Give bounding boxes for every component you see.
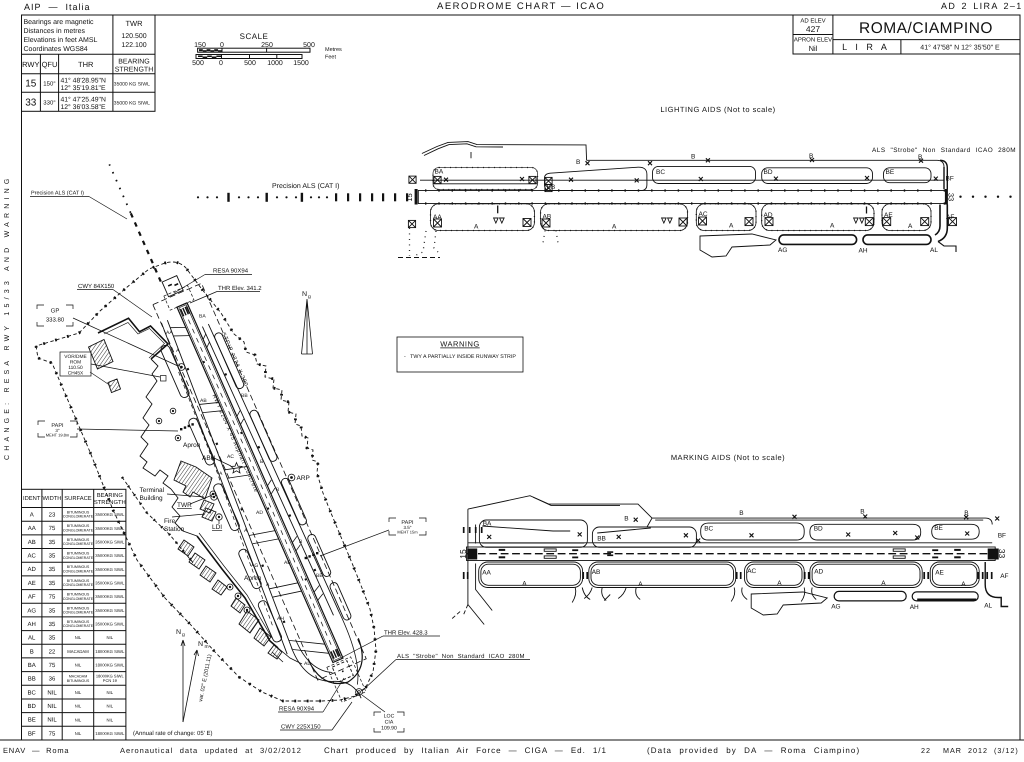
svg-text:AB: AB xyxy=(28,539,36,546)
svg-text:Coordinates WGS84: Coordinates WGS84 xyxy=(24,45,88,53)
svg-text:CONGLOMERATE: CONGLOMERATE xyxy=(63,611,94,615)
svg-text:LDI: LDI xyxy=(212,524,222,531)
svg-text:NIL: NIL xyxy=(75,690,82,695)
svg-text:BD: BD xyxy=(814,526,823,533)
svg-text:33: 33 xyxy=(997,549,1007,559)
svg-text:CWY 84X150: CWY 84X150 xyxy=(78,283,115,290)
svg-text:NIL: NIL xyxy=(107,717,114,722)
svg-text:AD: AD xyxy=(814,569,823,576)
svg-text:ALS "Strobe" Non Standard ICAO: ALS "Strobe" Non Standard ICAO 280M xyxy=(872,147,1016,154)
svg-text:Fire: Fire xyxy=(164,518,176,525)
svg-text:A: A xyxy=(474,224,479,231)
svg-text:(Annual rate of change: 05' E): (Annual rate of change: 05' E) xyxy=(133,730,213,737)
svg-text:B: B xyxy=(624,516,628,523)
svg-text:AE: AE xyxy=(28,580,36,587)
svg-text:A: A xyxy=(830,223,835,230)
svg-text:A: A xyxy=(638,581,643,588)
svg-text:122.100: 122.100 xyxy=(121,42,146,49)
svg-text:WIDTH: WIDTH xyxy=(43,496,62,502)
svg-text:35000KG SIWL: 35000KG SIWL xyxy=(95,567,125,572)
svg-text:N: N xyxy=(176,629,181,636)
svg-text:23: 23 xyxy=(49,512,56,519)
svg-text:ARP: ARP xyxy=(297,475,310,482)
svg-text:AH: AH xyxy=(910,604,919,611)
svg-text:AD: AD xyxy=(28,566,37,573)
svg-text:75: 75 xyxy=(49,525,56,532)
svg-text:330°: 330° xyxy=(43,100,56,107)
svg-text:AG: AG xyxy=(831,604,840,611)
svg-text:427: 427 xyxy=(806,24,820,34)
svg-text:AE: AE xyxy=(284,560,291,566)
svg-text:ABN: ABN xyxy=(202,455,216,462)
svg-text:A: A xyxy=(961,581,966,588)
svg-text:0: 0 xyxy=(219,60,223,67)
svg-text:TWR: TWR xyxy=(177,502,192,509)
svg-text:33: 33 xyxy=(25,98,37,109)
svg-text:Apron: Apron xyxy=(244,575,262,582)
svg-text:BE: BE xyxy=(934,525,943,532)
svg-text:BF: BF xyxy=(998,533,1006,540)
svg-text:ROM: ROM xyxy=(70,360,81,366)
svg-text:SCALE: SCALE xyxy=(240,32,269,41)
svg-text:BC: BC xyxy=(28,689,37,696)
svg-text:AH: AH xyxy=(28,621,36,628)
svg-text:A: A xyxy=(30,512,34,519)
svg-text:Elevations in feet AMSL: Elevations in feet AMSL xyxy=(24,36,98,44)
svg-text:109.90: 109.90 xyxy=(381,726,397,732)
svg-text:AF: AF xyxy=(1000,573,1008,580)
svg-text:NIL: NIL xyxy=(75,731,82,736)
svg-text:CONGLOMERATE: CONGLOMERATE xyxy=(63,583,94,587)
svg-text:BEARING: BEARING xyxy=(97,492,124,499)
svg-text:AG: AG xyxy=(778,247,787,254)
svg-text:CWY 225X150: CWY 225X150 xyxy=(281,724,321,731)
svg-text:WARNING: WARNING xyxy=(440,340,479,349)
svg-text:BB: BB xyxy=(28,676,36,683)
svg-text:Aeronautical data updated at 3: Aeronautical data updated at 3/02/2012 xyxy=(120,746,302,755)
svg-text:AE: AE xyxy=(935,570,944,577)
svg-text:THR Elev. 341.2: THR Elev. 341.2 xyxy=(218,285,262,292)
svg-text:Bearings are magnetic: Bearings are magnetic xyxy=(24,18,95,26)
svg-text:35: 35 xyxy=(49,566,56,573)
svg-text:AERODROME CHART — ICAO: AERODROME CHART — ICAO xyxy=(437,1,605,12)
svg-text:BB: BB xyxy=(597,536,606,543)
svg-text:BA: BA xyxy=(483,521,492,528)
svg-text:41° 47'25.49"N: 41° 47'25.49"N xyxy=(61,97,106,104)
svg-text:Distances in metres: Distances in metres xyxy=(24,27,86,35)
svg-text:VOR/DME: VOR/DME xyxy=(64,354,86,360)
svg-text:AC: AC xyxy=(227,454,234,460)
svg-text:12° 35'19.81"E: 12° 35'19.81"E xyxy=(61,85,106,92)
svg-text:NIL: NIL xyxy=(47,689,57,696)
svg-text:CONGLOMERATE: CONGLOMERATE xyxy=(63,569,94,573)
svg-text:35000 KG SIWL: 35000 KG SIWL xyxy=(114,101,150,107)
svg-text:MACADAM: MACADAM xyxy=(67,649,89,654)
svg-text:CONGLOMERATE: CONGLOMERATE xyxy=(63,515,94,519)
svg-text:TWR: TWR xyxy=(125,19,143,28)
svg-text:RESA 90X94: RESA 90X94 xyxy=(213,268,249,275)
svg-text:MEHT 15m: MEHT 15m xyxy=(397,530,418,535)
svg-text:GP: GP xyxy=(51,308,60,315)
svg-text:75: 75 xyxy=(49,662,56,669)
svg-text:Precision ALS (CAT I): Precision ALS (CAT I) xyxy=(272,182,339,190)
svg-text:STRENGTH: STRENGTH xyxy=(115,67,154,74)
svg-text:A: A xyxy=(777,580,782,587)
svg-text:SURFACE: SURFACE xyxy=(64,495,92,502)
svg-text:BA: BA xyxy=(435,169,444,176)
svg-text:BC: BC xyxy=(656,169,665,176)
svg-text:APRON ELEV: APRON ELEV xyxy=(794,37,832,44)
svg-text:(Data provided by DA — Roma Ci: (Data provided by DA — Roma Ciampino) xyxy=(647,746,860,755)
svg-text:NIL: NIL xyxy=(107,704,114,709)
svg-text:IDENT: IDENT xyxy=(23,496,41,502)
svg-text:var. 02° E (2011.11): var. 02° E (2011.11) xyxy=(198,654,213,703)
svg-text:35: 35 xyxy=(49,539,56,546)
svg-text:CONGLOMERATE: CONGLOMERATE xyxy=(63,556,94,560)
svg-text:CONGLOMERATE: CONGLOMERATE xyxy=(63,624,94,628)
svg-text:150°: 150° xyxy=(43,81,56,88)
svg-text:B: B xyxy=(739,510,743,517)
svg-text:CH45X: CH45X xyxy=(68,371,84,377)
svg-text:NIL: NIL xyxy=(75,704,82,709)
svg-text:AC: AC xyxy=(28,553,37,560)
svg-text:41° 47'58" N 12° 35'50" E: 41° 47'58" N 12° 35'50" E xyxy=(920,45,1000,52)
svg-text:18000KG SIWL: 18000KG SIWL xyxy=(95,649,125,654)
svg-text:BE: BE xyxy=(316,573,323,579)
svg-text:Station: Station xyxy=(164,526,185,533)
svg-text:120.500: 120.500 xyxy=(121,33,146,40)
svg-text:Nil: Nil xyxy=(809,44,818,53)
svg-text:35000KG SIWL: 35000KG SIWL xyxy=(95,553,125,558)
svg-text:AL: AL xyxy=(304,661,310,667)
svg-text:BE: BE xyxy=(28,717,36,724)
svg-text:22 MAR 2012 (3/12): 22 MAR 2012 (3/12) xyxy=(921,746,1019,755)
svg-text:STRENGTH: STRENGTH xyxy=(94,499,126,506)
svg-text:18000KG SIWL: 18000KG SIWL xyxy=(95,663,125,668)
svg-text:CONGLOMERATE: CONGLOMERATE xyxy=(63,528,94,532)
svg-text:A: A xyxy=(729,223,734,230)
svg-text:Chart produced by Italian Air: Chart produced by Italian Air Force — CI… xyxy=(324,746,607,755)
svg-text:110.50: 110.50 xyxy=(68,365,83,371)
svg-text:NIL: NIL xyxy=(75,663,82,668)
svg-text:g: g xyxy=(308,294,311,300)
svg-text:A: A xyxy=(522,581,527,588)
svg-text:NIL: NIL xyxy=(107,635,114,640)
svg-text:AG: AG xyxy=(27,607,36,614)
svg-text:35000KG SIWL: 35000KG SIWL xyxy=(95,594,125,599)
svg-text:35000KG SIWL: 35000KG SIWL xyxy=(95,622,125,627)
svg-text:AH: AH xyxy=(859,248,868,255)
svg-text:THR Elev. 428.3: THR Elev. 428.3 xyxy=(384,630,428,637)
svg-text:RESA 90X94: RESA 90X94 xyxy=(279,706,315,713)
svg-text:NIL: NIL xyxy=(47,703,57,710)
svg-text:CHANGE: RESA RWY 15/33 AND WAR: CHANGE: RESA RWY 15/33 AND WARNING xyxy=(3,174,11,460)
svg-text:12° 36'03.58"E: 12° 36'03.58"E xyxy=(61,104,106,111)
svg-text:BB: BB xyxy=(241,393,248,399)
svg-text:A: A xyxy=(266,582,270,588)
svg-text:CONGLOMERATE: CONGLOMERATE xyxy=(63,542,94,546)
svg-text:1000: 1000 xyxy=(267,60,283,67)
svg-text:15: 15 xyxy=(25,79,37,90)
svg-text:MEHT 19.8m: MEHT 19.8m xyxy=(46,433,70,438)
svg-text:BC: BC xyxy=(704,526,713,533)
svg-text:A: A xyxy=(908,223,913,230)
svg-text:B: B xyxy=(30,648,34,655)
svg-text:AH: AH xyxy=(277,616,284,622)
svg-text:PCN 19: PCN 19 xyxy=(103,678,118,683)
svg-text:500: 500 xyxy=(192,60,204,67)
svg-text:g: g xyxy=(182,632,185,638)
svg-text:35000KG SIWL: 35000KG SIWL xyxy=(95,512,125,517)
svg-text:22: 22 xyxy=(49,648,56,655)
svg-text:ROMA/CIAMPINO: ROMA/CIAMPINO xyxy=(859,20,993,37)
svg-text:B: B xyxy=(576,159,580,166)
svg-text:35: 35 xyxy=(49,580,56,587)
svg-text:35: 35 xyxy=(49,635,56,642)
svg-text:BF: BF xyxy=(28,730,36,737)
svg-text:AA: AA xyxy=(28,525,36,532)
svg-text:35: 35 xyxy=(49,621,56,628)
svg-text:AD 2 LIRA 2–1: AD 2 LIRA 2–1 xyxy=(941,1,1023,11)
svg-text:A: A xyxy=(881,580,886,587)
svg-text:35000KG SIWL: 35000KG SIWL xyxy=(95,581,125,586)
svg-text:Precision ALS (CAT I): Precision ALS (CAT I) xyxy=(31,191,84,197)
svg-text:Metres: Metres xyxy=(325,47,342,53)
svg-text:BEARING: BEARING xyxy=(118,59,150,66)
svg-text:LIGHTING AIDS (Not to scale): LIGHTING AIDS (Not to scale) xyxy=(660,105,775,114)
svg-text:B: B xyxy=(691,154,695,161)
svg-text:75: 75 xyxy=(49,594,56,601)
svg-text:33: 33 xyxy=(947,193,956,201)
svg-text:BD: BD xyxy=(28,703,37,710)
svg-text:B: B xyxy=(299,539,303,545)
svg-text:AL: AL xyxy=(930,247,938,254)
svg-text:AIP — Italia: AIP — Italia xyxy=(24,2,91,12)
svg-text:m: m xyxy=(205,644,209,650)
svg-text:AA: AA xyxy=(482,570,491,577)
svg-text:BA: BA xyxy=(28,662,36,669)
svg-text:35000KG SIWL: 35000KG SIWL xyxy=(95,608,125,613)
svg-text:AA: AA xyxy=(166,330,173,336)
svg-text:RWY: RWY xyxy=(22,60,39,69)
svg-text:35000KG SIWL: 35000KG SIWL xyxy=(95,540,125,545)
svg-text:333.80: 333.80 xyxy=(46,317,65,324)
svg-text:18000KG SIWL: 18000KG SIWL xyxy=(95,731,125,736)
svg-text:41° 48'28.95"N: 41° 48'28.95"N xyxy=(61,78,106,85)
svg-text:ALS "Strobe" Non Standard ICAO: ALS "Strobe" Non Standard ICAO 280M xyxy=(397,653,525,660)
svg-text:35: 35 xyxy=(49,607,56,614)
svg-text:Feet: Feet xyxy=(325,55,336,61)
svg-text:BD: BD xyxy=(764,169,773,176)
svg-text:A: A xyxy=(612,224,617,231)
svg-text:AC: AC xyxy=(747,568,756,575)
svg-text:AB: AB xyxy=(200,398,207,404)
svg-text:BE: BE xyxy=(886,169,895,176)
svg-text:BITUMINOUS: BITUMINOUS xyxy=(67,679,90,683)
svg-text:15: 15 xyxy=(405,193,414,201)
svg-text:AD: AD xyxy=(256,510,263,516)
svg-text:MARKING AIDS (Not to scale): MARKING AIDS (Not to scale) xyxy=(671,453,785,462)
svg-text:500: 500 xyxy=(244,60,256,67)
svg-text:- TWY A PARTIALLY INSIDE RUN: - TWY A PARTIALLY INSIDE RUNWAY STRIP xyxy=(404,354,516,360)
svg-text:35000 KG SIWL: 35000 KG SIWL xyxy=(114,82,150,88)
svg-text:AL: AL xyxy=(984,603,992,610)
svg-text:THR: THR xyxy=(78,60,94,69)
svg-text:QFU: QFU xyxy=(42,60,58,69)
svg-text:AL: AL xyxy=(28,635,36,642)
svg-text:35: 35 xyxy=(49,553,56,560)
svg-text:AG: AG xyxy=(251,563,258,569)
svg-text:15: 15 xyxy=(458,549,468,559)
svg-text:N: N xyxy=(302,291,307,298)
svg-text:B: B xyxy=(276,487,280,493)
svg-text:Apron: Apron xyxy=(183,442,201,449)
svg-text:36: 36 xyxy=(49,676,56,683)
svg-text:NIL: NIL xyxy=(75,635,82,640)
svg-text:75: 75 xyxy=(49,730,56,737)
svg-text:N: N xyxy=(198,641,203,648)
svg-text:Terminal: Terminal xyxy=(140,487,165,494)
svg-text:1500: 1500 xyxy=(293,60,309,67)
svg-text:L I R A: L I R A xyxy=(842,42,890,52)
svg-text:AF: AF xyxy=(28,594,36,601)
svg-text:ENAV — Roma: ENAV — Roma xyxy=(3,746,69,755)
svg-text:NIL: NIL xyxy=(107,690,114,695)
svg-text:CONGLOMERATE: CONGLOMERATE xyxy=(63,597,94,601)
svg-text:A: A xyxy=(219,471,223,477)
svg-text:NIL: NIL xyxy=(47,717,57,724)
svg-text:Building: Building xyxy=(140,495,164,502)
svg-text:NIL: NIL xyxy=(75,717,82,722)
svg-text:AB: AB xyxy=(592,569,601,576)
svg-text:BA: BA xyxy=(199,314,206,320)
